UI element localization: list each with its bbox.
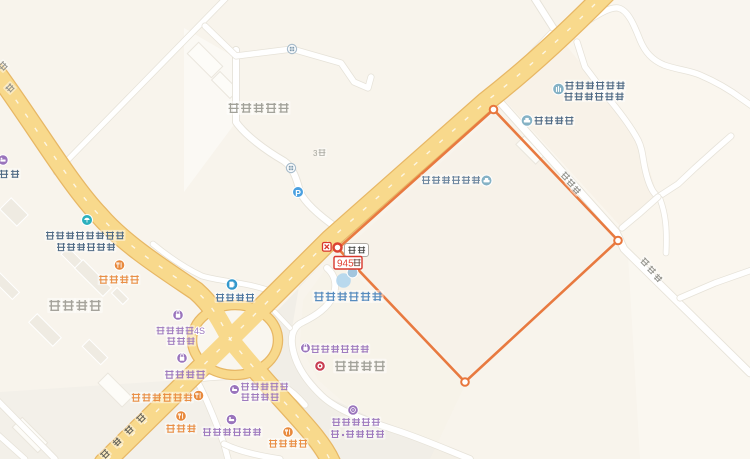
svg-text:4S: 4S: [194, 326, 205, 336]
svg-text:945: 945: [337, 259, 354, 270]
svg-text:P: P: [295, 188, 301, 198]
svg-text:3: 3: [313, 149, 318, 158]
